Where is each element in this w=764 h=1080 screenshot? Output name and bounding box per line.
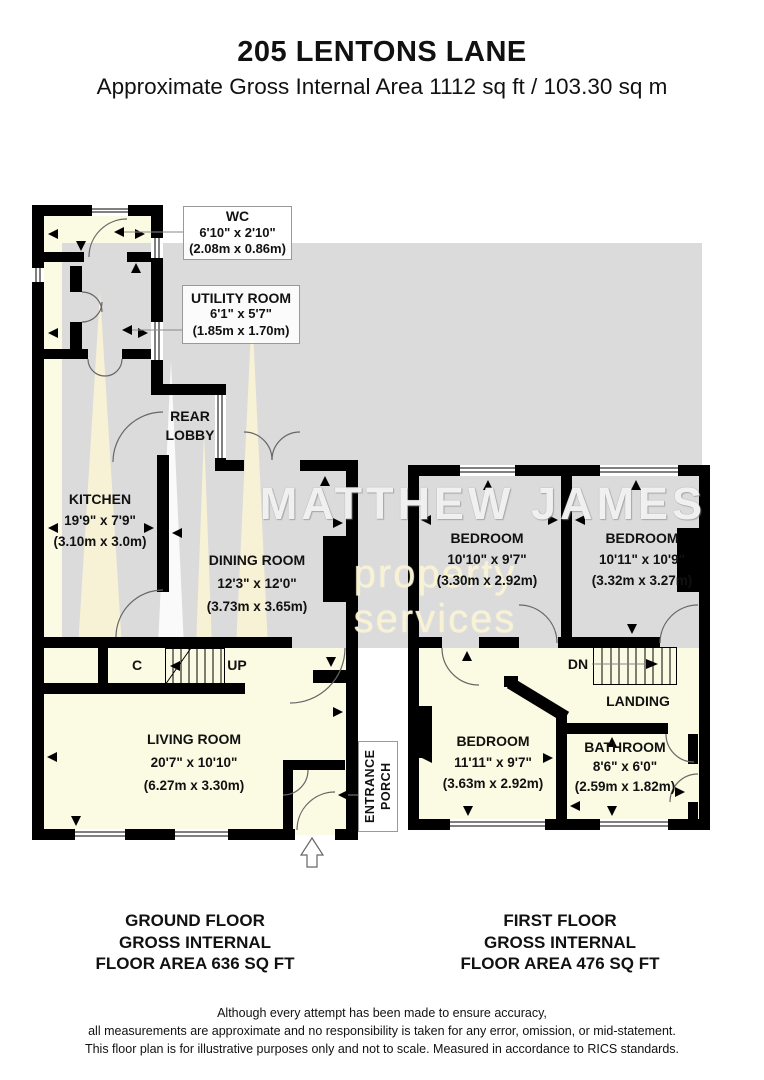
window [450, 819, 545, 830]
dining-room-label: DINING ROOM 12'3" x 12'0" (3.73m x 3.65m… [182, 549, 332, 618]
wall-segment [125, 829, 175, 840]
room-dims-imperial: 12'3" x 12'0" [182, 572, 332, 595]
room-name: WC [184, 208, 291, 225]
room-dims-metric: (3.32m x 3.27m) [577, 570, 707, 591]
room-name: REAR LOBBY [155, 407, 225, 445]
window [175, 829, 228, 840]
room-dims-imperial: 10'10" x 9'7" [422, 549, 552, 570]
wall-segment [313, 670, 358, 683]
room-dims-imperial: 11'11" x 9'7" [423, 752, 563, 773]
stairs-up-label: UP [224, 658, 250, 673]
wall-segment [70, 266, 82, 292]
wall-segment [32, 252, 84, 262]
wall-segment [408, 819, 450, 830]
window [75, 829, 125, 840]
landing-label: LANDING [588, 694, 688, 709]
room-dims-imperial: 6'1" x 5'7" [183, 306, 299, 323]
wall-segment [226, 460, 244, 471]
window [460, 465, 515, 476]
floorplan-page: 205 LENTONS LANE Approximate Gross Inter… [0, 0, 764, 1080]
wall-segment [545, 819, 600, 830]
room-dims-metric: (2.59m x 1.82m) [555, 777, 695, 797]
summary-line: FLOOR AREA 476 SQ FT [420, 953, 700, 975]
room-dims-metric: (3.73m x 3.65m) [182, 595, 332, 618]
summary-line: GROSS INTERNAL [420, 932, 700, 954]
disclaimer-line: all measurements are approximate and no … [0, 1022, 764, 1040]
room-dims-metric: (3.10m x 3.0m) [40, 531, 160, 552]
room-name: BATHROOM [555, 737, 695, 757]
room-name: BEDROOM [577, 528, 707, 549]
wall-segment [32, 637, 292, 648]
room-dims-metric: (2.08m x 0.86m) [184, 241, 291, 258]
stairs-down-label: DN [563, 657, 593, 672]
wall-segment [335, 829, 358, 840]
bedroom3-label: BEDROOM 11'11" x 9'7" (3.63m x 2.92m) [423, 731, 563, 794]
room-name: LIVING ROOM [114, 728, 274, 751]
room-dims-metric: (1.85m x 1.70m) [183, 323, 299, 340]
bathroom-label: BATHROOM 8'6" x 6'0" (2.59m x 1.82m) [555, 737, 695, 797]
summary-line: GROUND FLOOR [55, 910, 335, 932]
room-dims-metric: (3.30m x 2.92m) [422, 570, 552, 591]
wall-segment [151, 205, 163, 395]
room-dims-imperial: 10'11" x 10'9" [577, 549, 707, 570]
disclaimer-line: This floor plan is for illustrative purp… [0, 1040, 764, 1058]
kitchen-label: KITCHEN 19'9" x 7'9" (3.10m x 3.0m) [40, 489, 160, 552]
disclaimer-line: Although every attempt has been made to … [0, 1004, 764, 1022]
room-dims-imperial: 6'10" x 2'10" [184, 225, 291, 242]
cupboard-label: C [128, 658, 146, 673]
room-dims-metric: (6.27m x 3.30m) [114, 774, 274, 797]
wc-label: WC 6'10" x 2'10" (2.08m x 0.86m) [183, 206, 292, 260]
disclaimer: Although every attempt has been made to … [0, 1004, 764, 1058]
wall-segment [151, 384, 226, 395]
bedroom1-label: BEDROOM 10'10" x 9'7" (3.30m x 2.92m) [422, 528, 552, 591]
room-name: BEDROOM [422, 528, 552, 549]
room-dims-imperial: 8'6" x 6'0" [555, 757, 695, 777]
summary-line: GROSS INTERNAL [55, 932, 335, 954]
summary-line: FIRST FLOOR [420, 910, 700, 932]
window [32, 268, 44, 282]
room-name: KITCHEN [40, 489, 160, 510]
room-dims-metric: (3.63m x 2.92m) [423, 773, 563, 794]
living-room-label: LIVING ROOM 20'7" x 10'10" (6.27m x 3.30… [114, 728, 274, 797]
entrance-direction-arrow [301, 838, 323, 867]
summary-line: FLOOR AREA 636 SQ FT [55, 953, 335, 975]
room-name: DINING ROOM [182, 549, 332, 572]
room-dims-imperial: 19'9" x 7'9" [40, 510, 160, 531]
wall-segment [668, 819, 710, 830]
room-dims-imperial: 20'7" x 10'10" [114, 751, 274, 774]
bedroom2-label: BEDROOM 10'11" x 10'9" (3.32m x 3.27m) [577, 528, 707, 591]
rear-lobby-label: REAR LOBBY [155, 407, 225, 445]
first-floor-summary: FIRST FLOOR GROSS INTERNAL FLOOR AREA 47… [420, 910, 700, 975]
wall-segment [70, 322, 82, 352]
window [92, 205, 128, 216]
ground-floor-summary: GROUND FLOOR GROSS INTERNAL FLOOR AREA 6… [55, 910, 335, 975]
window [600, 465, 678, 476]
wall-segment [228, 829, 295, 840]
room-name: UTILITY ROOM [183, 290, 299, 307]
entrance-porch-label: ENTRANCE PORCH [358, 741, 398, 832]
room-name: BEDROOM [423, 731, 563, 752]
window [151, 238, 163, 258]
wall-segment [32, 829, 75, 840]
utility-room-label: UTILITY ROOM 6'1" x 5'7" (1.85m x 1.70m) [182, 285, 300, 344]
agency-watermark-name: MATTHEW JAMES [258, 478, 708, 530]
window [600, 819, 668, 830]
wall-segment [556, 723, 668, 734]
window [151, 322, 163, 360]
